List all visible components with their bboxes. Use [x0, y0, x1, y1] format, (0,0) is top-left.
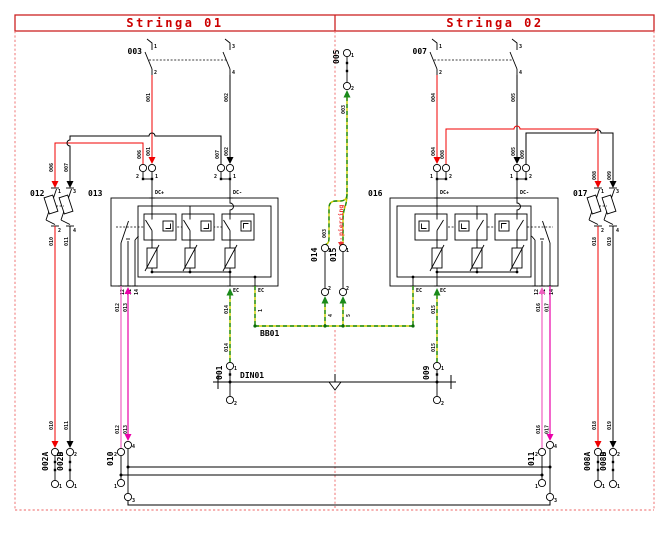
varistor [145, 240, 159, 272]
terminal-label: 3 [519, 44, 522, 50]
component-label: 012 [30, 189, 45, 198]
contact-blade [543, 221, 551, 243]
terminal-label: 2 [154, 70, 157, 76]
wire-label: 001 [146, 93, 152, 102]
wire-015-pe[interactable]: 015 015 [431, 288, 441, 362]
wire-label: 005 [511, 93, 517, 102]
terminal-label: 2 [601, 228, 604, 234]
ec-label: EC [233, 288, 239, 294]
wire-label: 018 [592, 421, 598, 430]
terminal-hook [147, 39, 152, 50]
aux-contact: 12 11 14 [118, 221, 140, 295]
wire-label: 016 [536, 303, 542, 312]
terminal-circle [217, 164, 224, 171]
component-switch-007[interactable]: 007 1 2 3 4 [413, 39, 522, 76]
component-label: 005 [332, 49, 341, 64]
header-stringa-02: Stringa 02 [446, 16, 543, 30]
bus-tap-label: 1 [258, 309, 264, 312]
wire-label: 017 [545, 303, 551, 312]
varistor [470, 240, 484, 272]
wire-arrow [149, 157, 156, 164]
terminal-circle [433, 362, 440, 369]
wire-002[interactable]: 002 002 [224, 75, 234, 164]
terminal-label: 1 [234, 366, 237, 372]
component-fuse-012[interactable]: 012 1 3 2 4 [30, 188, 76, 234]
terminal-circle [609, 448, 616, 455]
terminal-circle [538, 448, 545, 455]
terminal-label: 2 [136, 174, 139, 180]
terminal-label: 1 [58, 189, 61, 195]
ec-label: EC [440, 288, 446, 294]
wire-label: 016 [536, 425, 542, 434]
wire-label: 013 [123, 425, 129, 434]
terminal-circle [522, 164, 529, 171]
terminal-circle [513, 164, 520, 171]
wire-label: 006 [137, 150, 143, 159]
spd-module [144, 214, 176, 240]
terminal-label: 1 [441, 366, 444, 372]
spd-module [222, 214, 254, 240]
varistor [430, 240, 444, 272]
terminal-label: 4 [132, 444, 135, 450]
schematic-page: Stringa 01 Stringa 02 003 1 2 3 4 007 1 … [0, 0, 669, 533]
component-switch-003[interactable]: 003 1 2 3 4 [128, 39, 235, 76]
wire-009[interactable]: 009 009 [520, 130, 617, 188]
terminal-label: 2 [449, 174, 452, 180]
terminal-circle [546, 493, 553, 500]
varistor [183, 240, 197, 272]
terminal-label: 2 [74, 452, 77, 458]
spd-module [182, 214, 214, 240]
terminal-label: 12 [534, 289, 540, 295]
wire-label: 009 [607, 171, 613, 180]
varistor [510, 240, 524, 272]
terminal-label: 2 [346, 286, 349, 292]
switch-blade [145, 52, 152, 69]
terminal-label: 2 [58, 228, 61, 234]
wire-arrow [610, 181, 617, 188]
wire-arrow-down [125, 434, 132, 441]
wire-label: 005 [511, 147, 517, 156]
wire-label: 002 [224, 147, 230, 156]
wire-arrow [67, 181, 74, 188]
terminal-label: 1 [510, 174, 513, 180]
terminal-label: 4 [232, 70, 235, 76]
wire-label: 004 [431, 93, 437, 102]
ec-label: EC [416, 288, 422, 294]
wire-hop [230, 179, 234, 219]
wire-label: 010 [49, 421, 55, 430]
spd-module [415, 214, 447, 240]
terminal-label: 3 [132, 498, 135, 504]
pe-arrow [344, 90, 351, 98]
rail-ground-marker [329, 382, 341, 390]
component-label: 008A [583, 452, 592, 471]
wire-label: 002 [224, 93, 230, 102]
wire-label: 001 [146, 147, 152, 156]
terminal-label: 1 [535, 484, 538, 490]
component-label: 015 [329, 247, 338, 262]
switch-blade [510, 52, 517, 69]
component-label: 002A [41, 452, 50, 471]
wire-label: 003 [322, 229, 328, 238]
signal-link-wires[interactable] [121, 467, 550, 505]
pe-arrow [322, 296, 329, 304]
terminal-circle [226, 396, 233, 403]
terminal-circle [546, 441, 553, 448]
terminal-label: 3 [616, 189, 619, 195]
wire-label: 014 [224, 343, 230, 352]
component-label: 002B [56, 452, 65, 471]
component-terminal-010[interactable]: 010 2 4 1 3 [106, 441, 135, 504]
terminal-label: 2 [535, 452, 538, 458]
wire-label: 015 [431, 305, 437, 314]
spd-module [495, 214, 527, 240]
terminal-circle [139, 164, 146, 171]
component-label: 001 [215, 365, 224, 380]
terminal-circle [226, 164, 233, 171]
wire-label: 006 [49, 163, 55, 172]
wire-label: 017 [545, 425, 551, 434]
wire-012[interactable]: 012 012 [115, 286, 121, 448]
terminal-label: 1 [617, 484, 620, 490]
terminal-circle [148, 164, 155, 171]
terminal-circle [117, 479, 124, 486]
dc-minus-label: DC- [233, 190, 242, 196]
terminal-circle [124, 441, 131, 448]
spd-module [455, 214, 487, 240]
header-stringa-01: Stringa 01 [126, 16, 223, 30]
terminal-hook [512, 39, 517, 50]
wire-arrow [67, 441, 74, 448]
wire-label: 009 [520, 150, 526, 159]
terminal-circle [66, 480, 73, 487]
component-spd-016[interactable]: 016 1 2 DC+ 1 2 DC- [368, 164, 558, 295]
terminal-label: 14 [134, 289, 140, 295]
terminal-label: 1 [114, 484, 117, 490]
component-terminal-011[interactable]: 011 2 4 1 3 [527, 441, 557, 504]
component-label: 014 [310, 247, 319, 262]
fuse-element [59, 189, 73, 225]
wire-label: 012 [115, 425, 121, 434]
bus-label: BB01 [260, 329, 279, 338]
wire-arrow [595, 181, 602, 188]
piercing-label: piercing [337, 205, 345, 236]
wire-011[interactable]: 011 011 [64, 226, 74, 448]
wire-label: 019 [607, 237, 613, 246]
bus-tap-label: 8 [416, 307, 422, 310]
wire-label: 011 [64, 237, 70, 246]
component-label: 017 [573, 189, 588, 198]
wire-label: 010 [49, 237, 55, 246]
terminal-label: 1 [155, 174, 158, 180]
wire-018[interactable]: 018 018 [592, 226, 602, 448]
terminal-circle [538, 479, 545, 486]
terminal-label: 1 [601, 189, 604, 195]
wire-label: 018 [592, 237, 598, 246]
wire-label: 013 [123, 303, 129, 312]
terminal-label: 1 [154, 44, 157, 50]
component-electrode-015[interactable]: 015 1 2 5 [329, 244, 352, 326]
wire-arrow [52, 181, 59, 188]
terminal-circle [66, 448, 73, 455]
terminal-label: 3 [232, 44, 235, 50]
terminal-label: 2 [529, 174, 532, 180]
terminal-label: 2 [234, 401, 237, 407]
wire-label: 008 [440, 150, 446, 159]
terminal-circle [343, 49, 350, 56]
wire-hop [517, 179, 521, 219]
terminal-label: 4 [616, 228, 619, 234]
terminal-circle [343, 82, 350, 89]
bus-bb01[interactable]: 1 8 BB01 [253, 286, 422, 338]
terminal-label: 2 [351, 86, 354, 92]
terminal-circle [433, 396, 440, 403]
terminal-circle [124, 493, 131, 500]
fuse-element [587, 189, 601, 225]
terminal-label: 1 [233, 174, 236, 180]
terminal-label: 4 [554, 444, 557, 450]
wire-arrow [227, 157, 234, 164]
terminal-circle [594, 480, 601, 487]
terminal-circle [609, 480, 616, 487]
terminal-hook [225, 39, 230, 50]
annotation-piercing: piercing [337, 205, 345, 248]
wire-014-pe[interactable]: 014 014 [224, 288, 234, 362]
bus-tap-label: 4 [328, 314, 334, 317]
terminal-label: 2 [439, 70, 442, 76]
wire-label: 012 [115, 303, 121, 312]
terminal-label: 1 [602, 484, 605, 490]
dc-minus-label: DC- [520, 190, 529, 196]
wire-label: 011 [64, 421, 70, 430]
wire-label: 008 [592, 171, 598, 180]
wire-label: 019 [607, 421, 613, 430]
terminal-label: 4 [519, 70, 522, 76]
terminal-circle [442, 164, 449, 171]
terminal-label: 1 [346, 248, 349, 254]
aux-contact: 12 11 14 [532, 221, 556, 295]
switch-blade [430, 52, 437, 69]
din-rail[interactable]: DIN01 [213, 371, 456, 390]
dc-plus-label: DC+ [155, 190, 164, 196]
terminal-circle [433, 164, 440, 171]
terminal-circle [117, 448, 124, 455]
terminal-label: 1 [351, 53, 354, 59]
pe-arrow [340, 296, 347, 304]
wire-013[interactable]: 013 013 [123, 287, 132, 441]
switch-blade [223, 52, 230, 69]
wire-label: 015 [431, 343, 437, 352]
bus-tap-label: 5 [346, 314, 352, 317]
terminal-hook [432, 39, 437, 50]
component-label: 016 [368, 189, 383, 198]
ec-label: EC [258, 288, 264, 294]
fuse-element [602, 189, 616, 225]
terminal-label: 3 [554, 498, 557, 504]
terminal-circle [51, 480, 58, 487]
wire-arrow [52, 441, 59, 448]
terminal-label: 1 [59, 484, 62, 490]
fuse-element [44, 189, 58, 225]
component-terminal-009[interactable]: 009 1 2 [422, 362, 444, 407]
terminal-label: 1 [74, 484, 77, 490]
terminal-label: 1 [430, 174, 433, 180]
terminal-label: 2 [214, 174, 217, 180]
component-label: 003 [128, 47, 143, 56]
terminal-circle [226, 362, 233, 369]
terminal-label: 2 [328, 286, 331, 292]
terminal-label: 2 [114, 452, 117, 458]
varistor [223, 240, 237, 272]
terminal-label: 4 [73, 228, 76, 234]
wire-010[interactable]: 010 010 [49, 226, 59, 448]
wire-label: 004 [431, 147, 437, 156]
spd-outer-box [390, 198, 558, 286]
wire-label: 003 [341, 105, 347, 114]
wire-017[interactable]: 017 017 [545, 286, 554, 441]
component-label: 013 [88, 189, 103, 198]
din-rail-label: DIN01 [240, 371, 264, 380]
terminal-label: 2 [441, 401, 444, 407]
terminal-label: 2 [617, 452, 620, 458]
wire-arrow [595, 441, 602, 448]
wire-019[interactable]: 019 019 [607, 226, 617, 448]
component-fuse-017[interactable]: 017 1 3 2 4 [573, 188, 619, 234]
component-label: 009 [422, 365, 431, 380]
wire-label: 014 [224, 305, 230, 314]
component-label: 007 [413, 47, 428, 56]
terminal-label: 3 [73, 189, 76, 195]
wire-arrow [610, 441, 617, 448]
wire-001[interactable]: 001 001 [146, 75, 156, 164]
contact-blade [121, 221, 129, 243]
terminal-label: 1 [439, 44, 442, 50]
component-spd-013[interactable]: 013 2 1 DC+ 2 1 DC- [88, 164, 278, 295]
wire-arrow-down [547, 434, 554, 441]
wire-label: 007 [215, 150, 221, 159]
spd-outer-box [111, 198, 278, 286]
component-label: 008B [599, 452, 608, 471]
dc-plus-label: DC+ [440, 190, 449, 196]
wire-label: 007 [64, 163, 70, 172]
